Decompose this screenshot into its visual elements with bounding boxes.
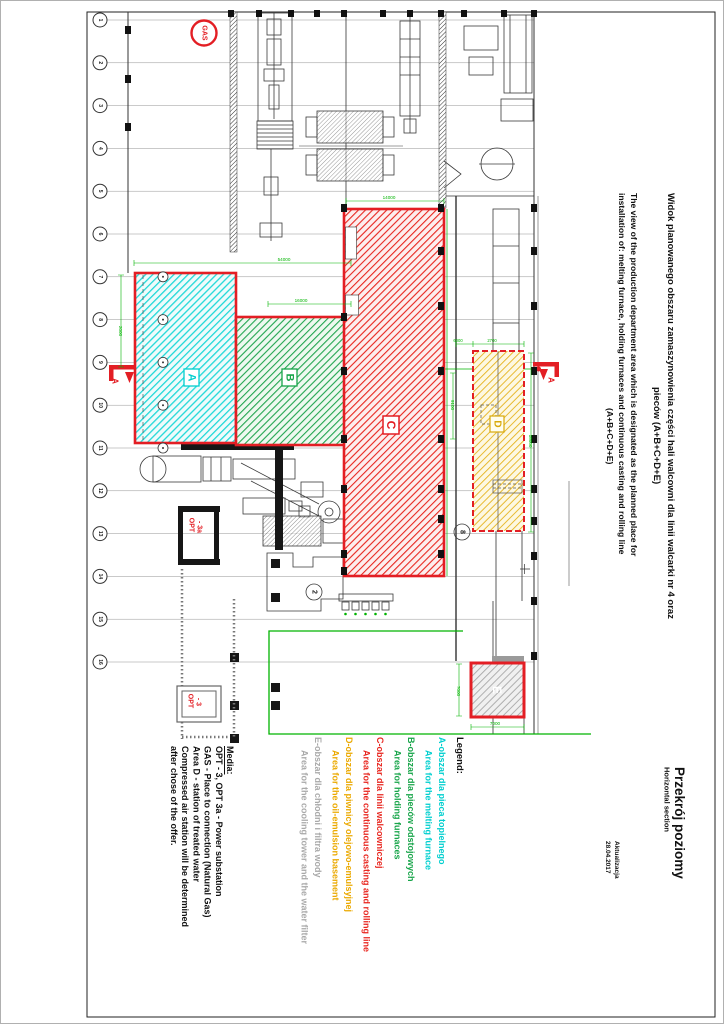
- dim-c-len: 9100: [450, 400, 455, 411]
- column-square: [341, 485, 347, 493]
- opt3a-line1: OPT: [188, 518, 195, 533]
- row-axis-dot: [162, 447, 164, 449]
- axis-number: 6: [97, 233, 103, 236]
- column-square: [438, 302, 444, 310]
- column-square: [531, 597, 537, 605]
- label-area-a: A: [186, 374, 198, 382]
- axis-number: 15: [97, 616, 103, 622]
- dim-hall-width: 54000: [278, 257, 291, 262]
- section-title-en: Horizontal section: [662, 767, 672, 917]
- column-square: [531, 485, 537, 493]
- legend: Legend: A-obszar dla pieca topielnegoAre…: [264, 737, 466, 1024]
- legend-entry-b-en: Area for holding furnaces: [390, 737, 404, 1024]
- column-square: [461, 10, 467, 17]
- label-area-e: E: [490, 686, 504, 694]
- title-polish: Widok planowanego obszaru zamaszynowieni…: [647, 193, 677, 679]
- column-square: [438, 515, 444, 523]
- column-square: [531, 517, 537, 525]
- axis-number: 12: [97, 488, 103, 494]
- column-square: [501, 10, 507, 17]
- column-square: [380, 10, 386, 17]
- column-square: [438, 10, 444, 17]
- column-square: [531, 302, 537, 310]
- column-square: [341, 435, 347, 443]
- column-square: [125, 75, 131, 83]
- opt3-line2: - 3: [195, 698, 202, 706]
- title-en-line3: (A+B+C+D+E): [604, 193, 616, 679]
- axis-number: 7: [97, 275, 103, 278]
- label-area-d: D: [492, 420, 503, 427]
- axis-number: 5: [97, 190, 103, 193]
- axis-number: 10: [97, 402, 103, 408]
- legend-heading: Legend:: [452, 737, 466, 1024]
- column-square: [288, 10, 294, 17]
- legend-entry-a-en: Area for the melting furnace: [421, 737, 435, 1024]
- legend-entry-d-pl: D-obszar dla piwnicy olejowo-emulsyjnej: [341, 737, 355, 1024]
- row-axis-dot: [162, 361, 164, 363]
- axis-number: 9: [97, 361, 103, 364]
- dim-a: 2000: [118, 326, 123, 337]
- column-square: [531, 204, 537, 212]
- dim-d-len: 18000: [528, 435, 533, 448]
- row-axis-dot: [162, 276, 164, 278]
- column-square: [341, 367, 347, 375]
- axis-number: 4: [97, 147, 103, 150]
- column-square: [228, 10, 234, 17]
- dim-c-width: 14000: [383, 195, 396, 200]
- gas-marker: GAS: [192, 21, 217, 46]
- update-block: Aktualizacja 28.04.2017: [600, 841, 620, 921]
- update-date: 28.04.2017: [602, 841, 611, 921]
- opt-labels: OPT - 3a OPT - 3: [187, 518, 203, 709]
- column-square: [341, 204, 347, 212]
- column-square: [438, 435, 444, 443]
- section-mark-a-left: A: [111, 378, 120, 384]
- legend-entry-c-en: Area for the continuous casting and roll…: [359, 737, 373, 1024]
- column-square: [341, 313, 347, 321]
- section-title-pl: Przekrój poziomy: [671, 767, 687, 917]
- media-line-1: OPT - 3, OPT 3a - Power substation: [213, 746, 224, 1021]
- gas-label: GAS: [201, 25, 208, 41]
- column-square: [531, 367, 537, 375]
- legend-entry-e-pl: E-obszar dla chłodni i filtra wody: [310, 737, 324, 1024]
- column-square: [531, 552, 537, 560]
- column-square: [531, 10, 537, 17]
- axis-number: 13: [97, 531, 103, 537]
- column-square: [125, 123, 131, 131]
- area-c: [344, 209, 444, 576]
- area-a: [135, 273, 236, 443]
- title-pl-line2: pieców (A+B+C+D+E): [649, 193, 663, 679]
- axis-number: 3: [97, 104, 103, 107]
- media-line-3: Area D - station of treated water: [190, 746, 201, 1021]
- legend-entry-e-en: Area for the cooling tower and the water…: [297, 737, 311, 1024]
- dim-b-width: 16000: [295, 298, 308, 303]
- dim-e-len: 7000: [456, 686, 461, 697]
- column-square: [438, 485, 444, 493]
- column-square: [438, 204, 444, 212]
- column-square: [256, 10, 262, 17]
- section-mark-a-right: A: [547, 377, 556, 383]
- column-square: [438, 550, 444, 558]
- legend-entry-c-pl: C-obszar dla linii walcowniczej: [372, 737, 386, 1024]
- dim-gap: 6000: [453, 338, 463, 343]
- drawing-sheet: 12345678910111213141516: [0, 0, 724, 1024]
- row-axis-dot: [162, 404, 164, 406]
- axis-number: 8: [97, 318, 103, 321]
- section-title: Przekrój poziomy Horizontal section: [645, 767, 687, 917]
- axis-number: 11: [97, 445, 103, 451]
- column-square: [438, 247, 444, 255]
- row-axis-dot: [162, 319, 164, 321]
- opt3-line1: OPT: [187, 694, 194, 709]
- title-en-line1: The view of the production department ar…: [628, 193, 640, 679]
- area-d: [473, 351, 524, 531]
- dim-d-width: 2700: [487, 338, 497, 343]
- column-square: [531, 247, 537, 255]
- dim-e-width: 7000: [490, 721, 501, 726]
- label-area-c: C: [384, 421, 398, 430]
- axis-number: 14: [97, 574, 103, 580]
- axis-number: 1: [97, 19, 103, 22]
- column-square: [341, 10, 347, 17]
- update-label: Aktualizacja: [611, 841, 620, 921]
- label-area-b: B: [284, 374, 296, 382]
- legend-entry-d-en: Area for the oil-emulsion basement: [328, 737, 342, 1024]
- media-notes: Media: OPT - 3, OPT 3a - Power substatio…: [171, 746, 235, 1021]
- column-square: [341, 550, 347, 558]
- circled-marker-8: 8: [459, 530, 466, 534]
- title-english: The view of the production department ar…: [602, 193, 640, 679]
- media-line-5: after chose of the offer.: [168, 746, 179, 1021]
- legend-entry-b-pl: B-obszar dla pieców odstojowych: [403, 737, 417, 1024]
- axis-number: 16: [97, 659, 103, 665]
- column-square: [531, 652, 537, 660]
- opt3a-line2: - 3a: [196, 521, 203, 533]
- column-square: [314, 10, 320, 17]
- column-square: [407, 10, 413, 17]
- media-heading: Media:: [224, 746, 235, 1021]
- axis-number: 2: [97, 61, 103, 64]
- media-line-4: Compressed air station will be determine…: [179, 746, 190, 1021]
- column-square: [125, 26, 131, 34]
- column-square: [341, 567, 347, 575]
- circled-marker-2: 2: [311, 590, 318, 594]
- media-line-2: GAS - Place to connection (Natural Gas): [201, 746, 212, 1021]
- title-pl-line1: Widok planowanego obszaru zamaszynowieni…: [663, 193, 677, 679]
- column-square: [438, 367, 444, 375]
- legend-entry-a-pl: A-obszar dla pieca topielnego: [434, 737, 448, 1024]
- title-en-line2: installation of: melting furnace, holdin…: [616, 193, 628, 679]
